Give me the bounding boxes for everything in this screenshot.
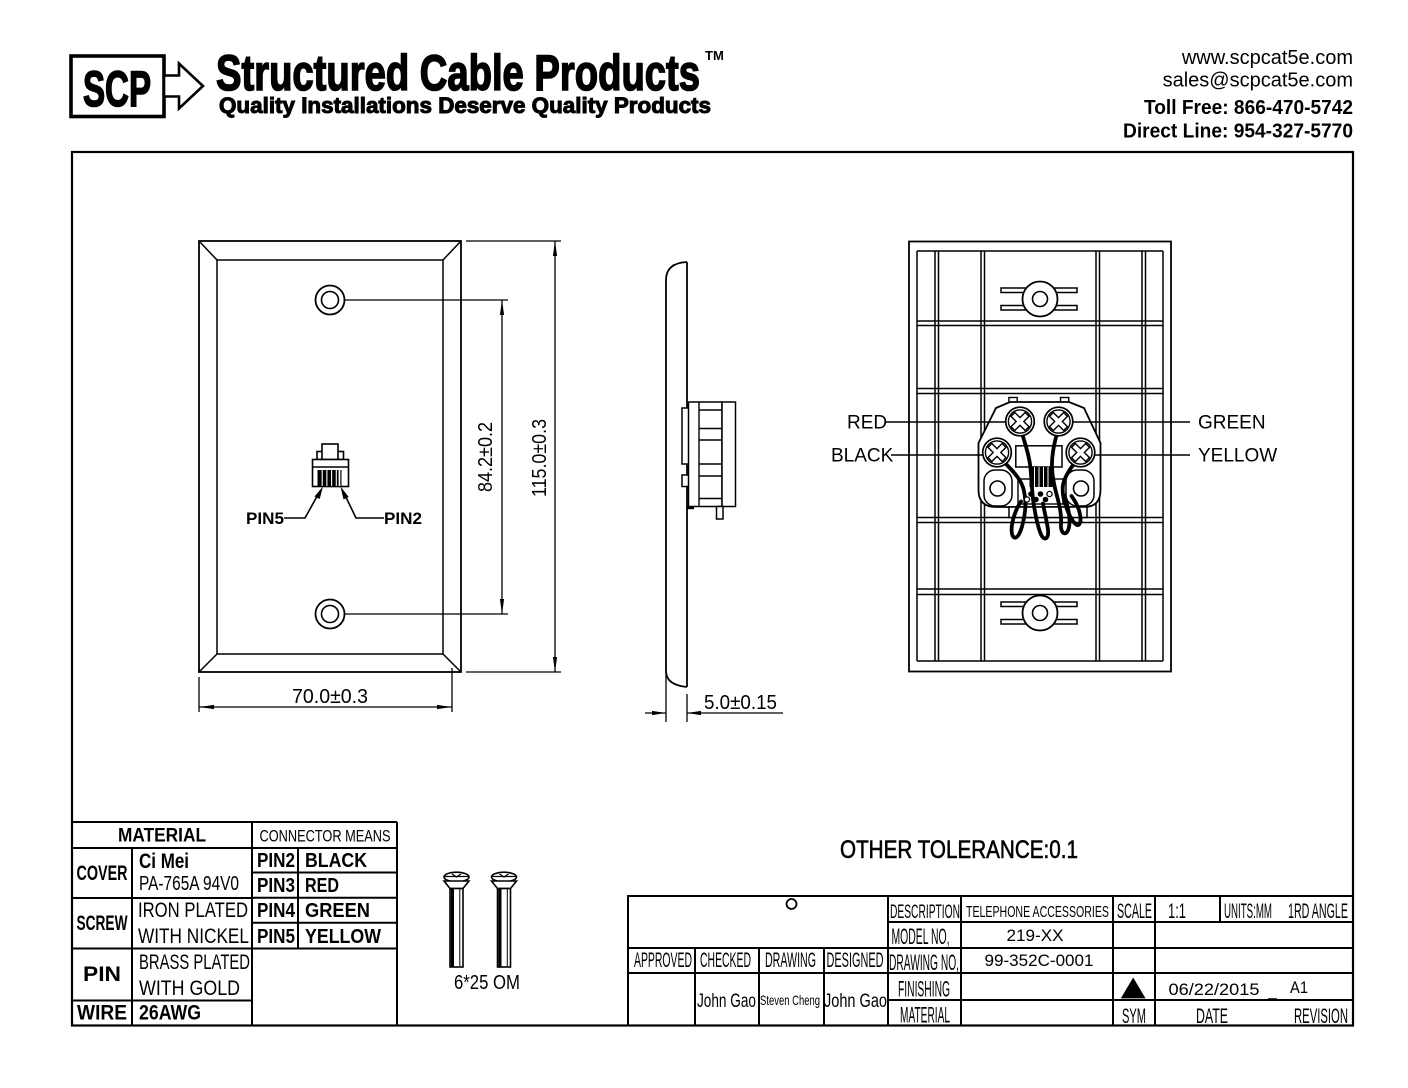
svg-text:CHECKED: CHECKED <box>700 949 751 972</box>
svg-text:www.scpcat5e.com: www.scpcat5e.com <box>1181 47 1353 69</box>
svg-text:TELEPHONE ACCESSORIES: TELEPHONE ACCESSORIES <box>966 904 1109 921</box>
svg-text:Direct Line: 954-327-5770: Direct Line: 954-327-5770 <box>1123 121 1353 143</box>
svg-text:OTHER TOLERANCE:0.1: OTHER TOLERANCE:0.1 <box>840 836 1078 864</box>
svg-text:115.0±0.3: 115.0±0.3 <box>529 419 551 497</box>
svg-text:PIN5: PIN5 <box>257 926 295 948</box>
svg-text:SCREW: SCREW <box>77 912 128 935</box>
svg-text:DATE: DATE <box>1196 1005 1228 1028</box>
svg-text:IRON PLATED: IRON PLATED <box>138 899 248 922</box>
svg-text:DRAWING: DRAWING <box>765 949 816 972</box>
svg-text:GREEN: GREEN <box>305 900 370 922</box>
svg-text:PA-765A 94V0: PA-765A 94V0 <box>139 873 239 895</box>
svg-text:PIN: PIN <box>83 963 121 986</box>
svg-text:WIRE: WIRE <box>77 1002 127 1025</box>
svg-text:MATERIAL: MATERIAL <box>118 826 206 847</box>
svg-text:PIN2: PIN2 <box>257 850 295 872</box>
svg-text:COVER: COVER <box>77 862 128 885</box>
svg-text:FINISHING: FINISHING <box>898 977 950 1002</box>
svg-text:TM: TM <box>705 48 724 63</box>
svg-text:DESCRIPTION: DESCRIPTION <box>890 902 960 923</box>
svg-text:YELLOW: YELLOW <box>305 926 381 948</box>
svg-text:Quality Installations Deserve: Quality Installations Deserve Quality Pr… <box>219 93 711 118</box>
svg-text:John Gao: John Gao <box>824 991 887 1012</box>
svg-text:1:1: 1:1 <box>1168 900 1186 923</box>
svg-text:MODEL NO,: MODEL NO, <box>892 924 950 949</box>
svg-text:APPROVED: APPROVED <box>634 949 692 972</box>
svg-text:6*25 OM: 6*25 OM <box>454 972 520 994</box>
svg-text:BLACK: BLACK <box>305 850 367 872</box>
svg-text:Ci Mei: Ci Mei <box>139 850 189 873</box>
svg-text:SYM: SYM <box>1122 1005 1146 1028</box>
svg-text:PIN5: PIN5 <box>246 509 284 528</box>
svg-text:WITH NICKEL: WITH NICKEL <box>138 925 249 948</box>
svg-text:PIN2: PIN2 <box>384 509 422 528</box>
svg-text:70.0±0.3: 70.0±0.3 <box>292 686 368 708</box>
svg-text:A1: A1 <box>1290 978 1308 997</box>
svg-text:UNITS:MM: UNITS:MM <box>1224 900 1272 923</box>
svg-text:sales@scpcat5e.com: sales@scpcat5e.com <box>1163 70 1353 92</box>
svg-text:WITH GOLD: WITH GOLD <box>139 977 240 1000</box>
svg-text:SCP: SCP <box>83 61 151 117</box>
svg-text:REVISION: REVISION <box>1294 1005 1348 1028</box>
svg-text:06/22/2015: 06/22/2015 <box>1169 980 1260 999</box>
svg-text:Steven Cheng: Steven Cheng <box>760 992 820 1008</box>
svg-text:DESIGNED: DESIGNED <box>827 949 884 972</box>
svg-text:RED: RED <box>847 413 887 434</box>
svg-text:GREEN: GREEN <box>1198 413 1266 434</box>
svg-text:1RD ANGLE: 1RD ANGLE <box>1288 900 1348 923</box>
svg-text:MATERIAL: MATERIAL <box>900 1003 950 1028</box>
svg-text:John Gao: John Gao <box>697 991 756 1012</box>
svg-text:BRASS PLATED: BRASS PLATED <box>139 951 250 974</box>
svg-text:BLACK: BLACK <box>831 446 894 467</box>
svg-text:CONNECTOR MEANS: CONNECTOR MEANS <box>260 827 391 846</box>
svg-text:DRAWING NO,: DRAWING NO, <box>889 950 959 975</box>
svg-text:YELLOW: YELLOW <box>1198 446 1277 467</box>
svg-text:219-XX: 219-XX <box>1007 926 1064 945</box>
svg-text:SCALE: SCALE <box>1117 900 1152 923</box>
svg-text:5.0±0.15: 5.0±0.15 <box>704 692 777 714</box>
svg-text:RED: RED <box>305 875 339 897</box>
svg-text:26AWG: 26AWG <box>139 1002 201 1025</box>
svg-text:Toll Free: 866-470-5742: Toll Free: 866-470-5742 <box>1144 97 1353 119</box>
svg-text:84.2±0.2: 84.2±0.2 <box>475 422 497 492</box>
svg-text:PIN4: PIN4 <box>257 900 296 922</box>
svg-text:99-352C-0001: 99-352C-0001 <box>985 951 1094 970</box>
svg-text:PIN3: PIN3 <box>257 875 295 897</box>
